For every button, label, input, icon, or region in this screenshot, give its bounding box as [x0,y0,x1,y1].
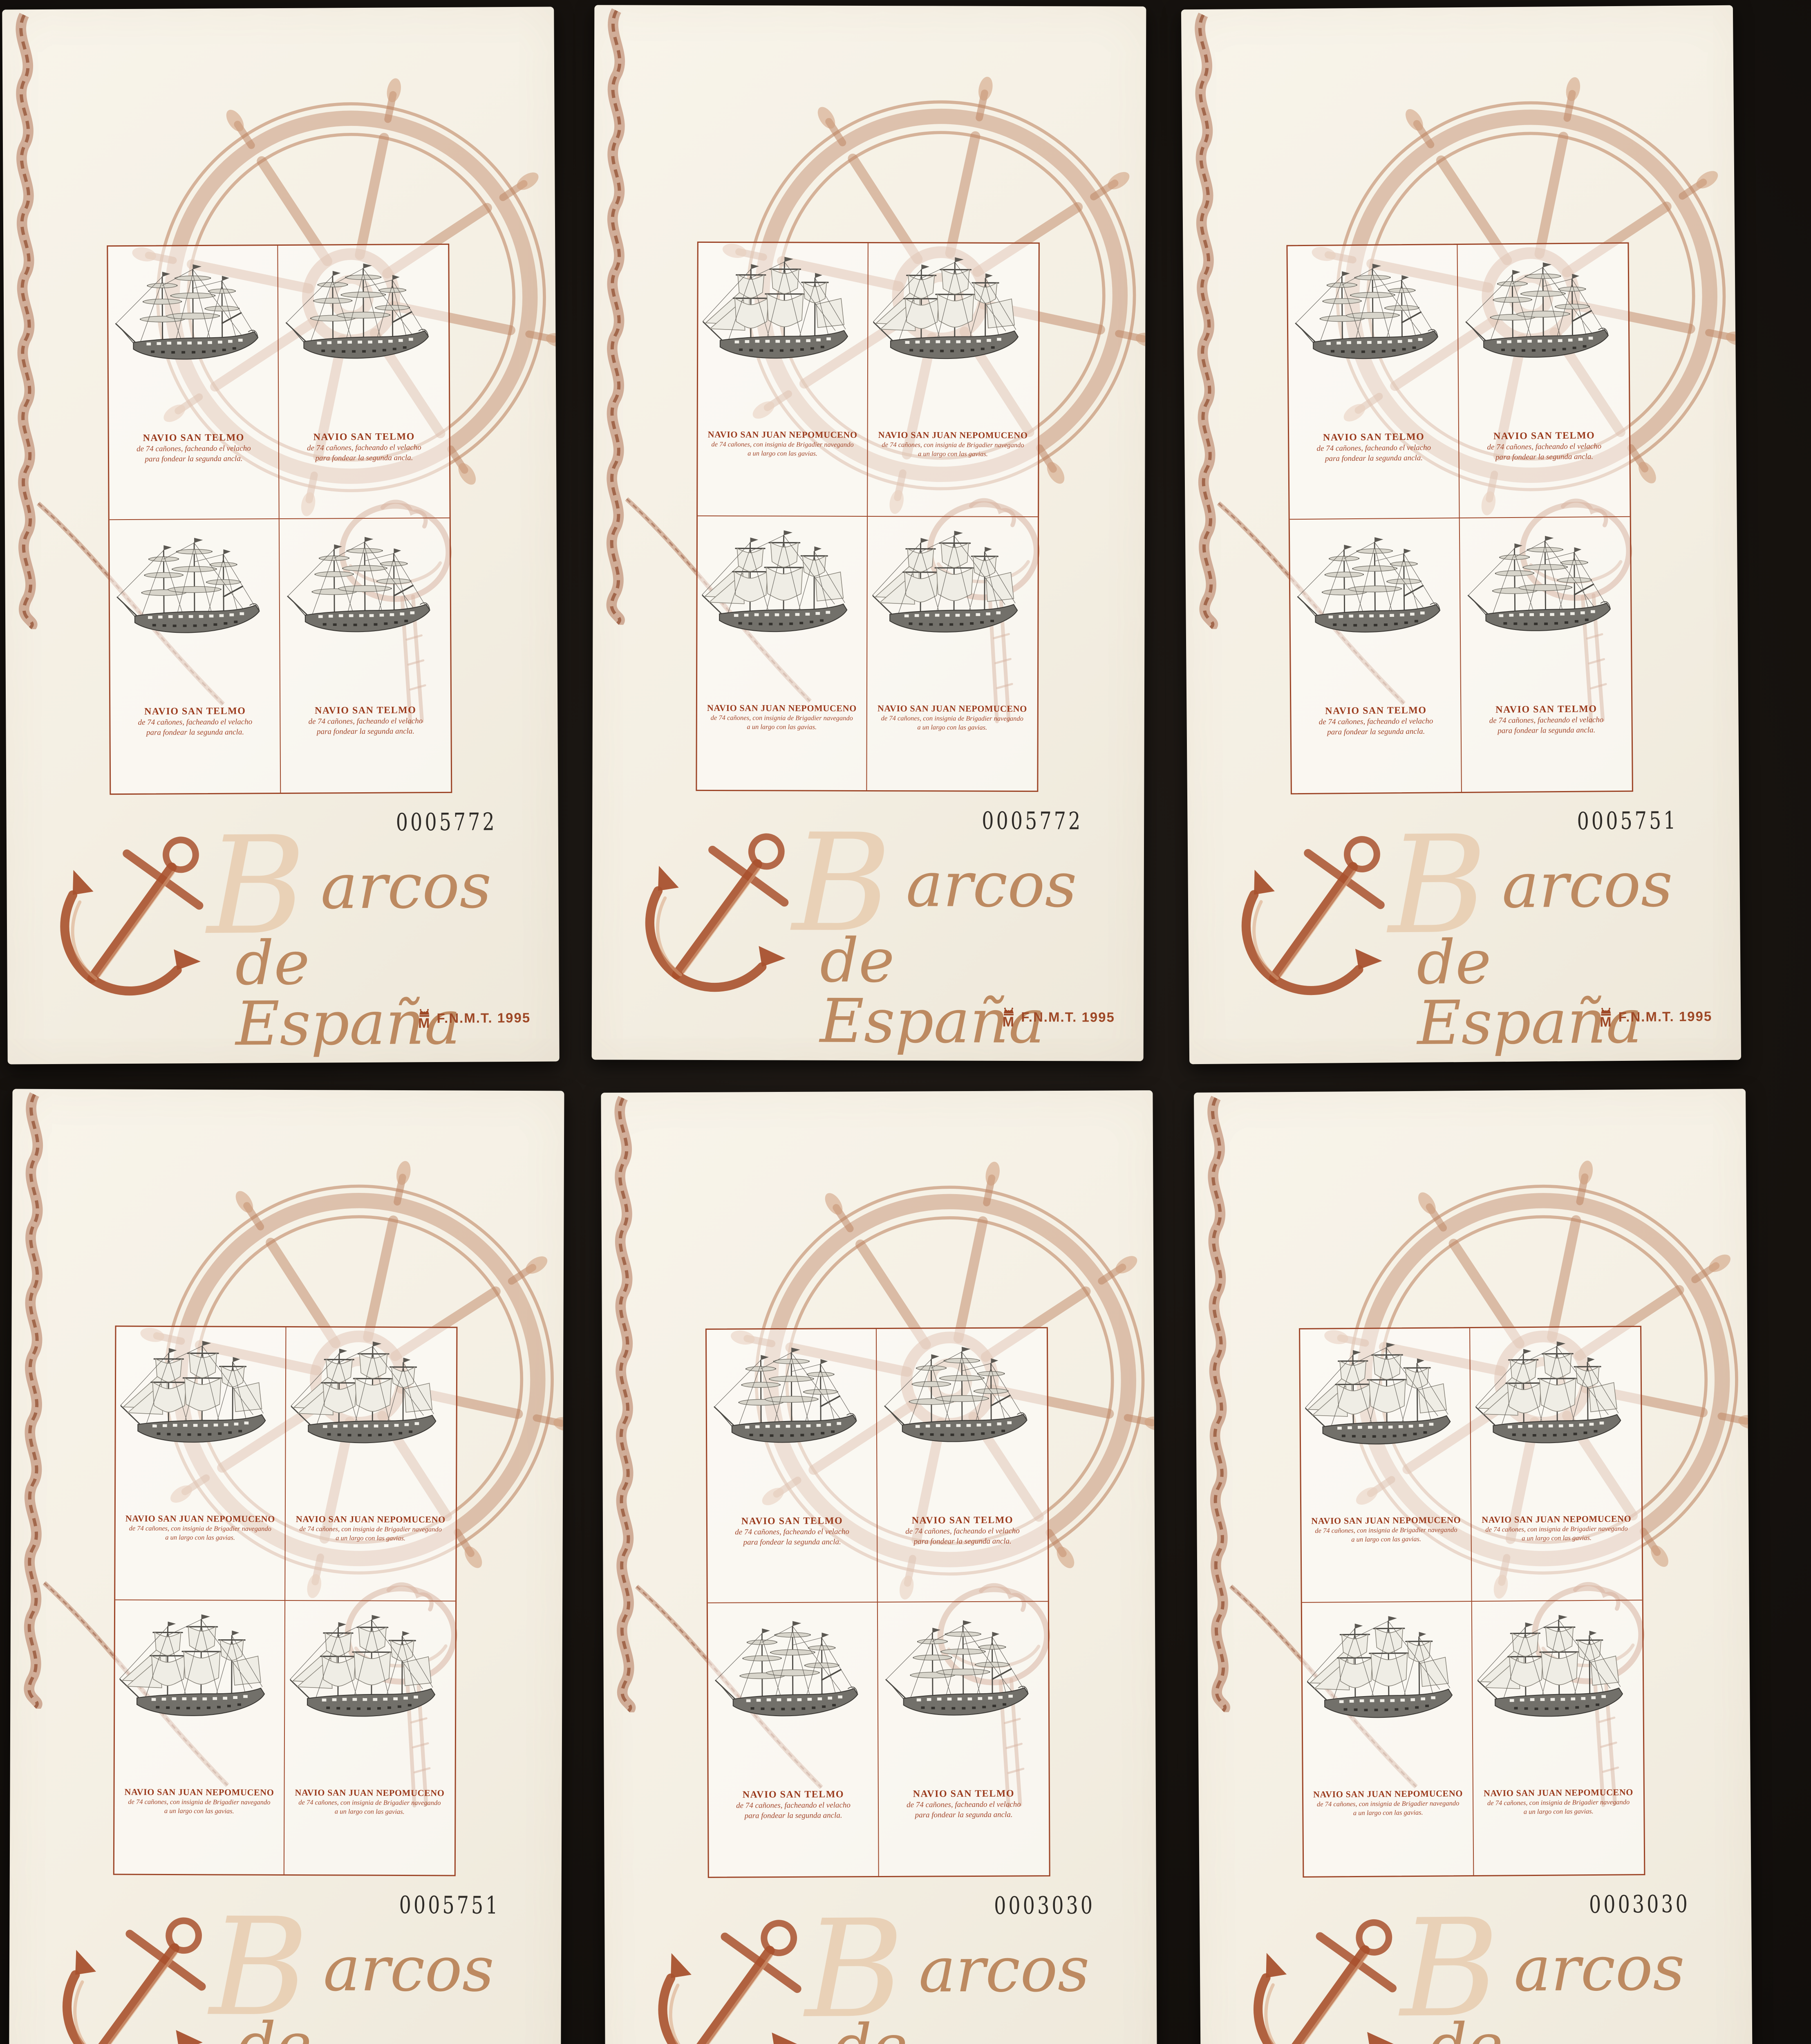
stamp-caption-line: de 74 cañones, con insignia de Brigadier… [878,714,1027,723]
stamp-caption-line: a un largo con las gavias. [878,449,1028,459]
stamp-caption-line: de 74 cañones, facheando el velacho [308,716,423,727]
ship-engraving [119,1614,280,1777]
stamp-caption: NAVIO SAN TELMO de 74 cañones, facheando… [307,431,421,464]
stamp-caption-line: a un largo con las gavias. [878,723,1027,732]
stamp-caption-line: de 74 cañones, facheando el velacho [735,1526,849,1537]
stamp-title: NAVIO SAN TELMO [307,431,421,443]
stamp-caption-line: a un largo con las gavias. [1482,1533,1632,1543]
stamp-caption: NAVIO SAN JUAN NEPOMUCENO de 74 cañones,… [296,1514,445,1543]
stamp-block: NAVIO SAN JUAN NEPOMUCENO de 74 cañones,… [113,1326,458,1876]
stamp-caption-line: de 74 cañones, facheando el velacho [1316,443,1431,454]
printer-credit: M F.N.M.T. 1995 [1442,1006,1712,1029]
ship-engraving [283,258,444,422]
stamp-caption-line: de 74 cañones, con insignia de Brigadier… [1482,1524,1631,1534]
stamp-title: NAVIO SAN TELMO [137,432,251,444]
stamp: NAVIO SAN JUAN NEPOMUCENO de 74 cañones,… [1302,1602,1474,1876]
title-word: arcos [320,855,492,918]
stamp-caption: NAVIO SAN JUAN NEPOMUCENO de 74 cañones,… [878,703,1027,732]
stamp-caption-line: a un largo con las gavias. [125,1533,275,1542]
stamp: NAVIO SAN TELMO de 74 cañones, facheando… [708,1602,879,1877]
stamp-caption: NAVIO SAN TELMO de 74 cañones, facheando… [1319,705,1433,737]
anchor-illustration [1206,1887,1430,2044]
stamp-caption-line: de 74 cañones, con insignia de Brigadier… [708,440,857,449]
stamp: NAVIO SAN JUAN NEPOMUCENO de 74 cañones,… [698,243,869,517]
title-word: arcos [918,1939,1090,2001]
ship-engraving [712,1616,873,1780]
stamp-title: NAVIO SAN TELMO [1489,704,1603,715]
stamp-caption-line: para fondear la segunda ancla. [736,1810,851,1821]
ship-engraving [120,1340,281,1504]
stamp-caption-line: de 74 cañones, con insignia de Brigadier… [878,440,1028,450]
stamp-sheet: NAVIO SAN JUAN NEPOMUCENO de 74 cañones,… [592,5,1146,1061]
stamp-caption-line: a un largo con las gavias. [707,449,857,458]
ship-engraving [873,256,1034,420]
stamp-caption: NAVIO SAN JUAN NEPOMUCENO de 74 cañones,… [707,703,857,731]
stamp-block: NAVIO SAN JUAN NEPOMUCENO de 74 cañones,… [1299,1326,1645,1878]
stamp: NAVIO SAN JUAN NEPOMUCENO de 74 cañones,… [868,243,1039,517]
stamp: NAVIO SAN TELMO de 74 cañones, facheando… [1290,518,1462,793]
stamp-title: NAVIO SAN TELMO [905,1515,1020,1526]
stamp: NAVIO SAN JUAN NEPOMUCENO de 74 cañones,… [114,1600,285,1874]
stamp: NAVIO SAN JUAN NEPOMUCENO de 74 cañones,… [867,517,1038,791]
ship-engraving [1292,258,1454,423]
sheet-serial-number: 0003030 [1510,1889,1690,1919]
stamp-title: NAVIO SAN JUAN NEPOMUCENO [125,1513,275,1524]
stamp-caption-line: de 74 cañones, con insignia de Brigadier… [296,1524,445,1534]
stamp-caption-line: de 74 cañones, con insignia de Brigadier… [1484,1797,1633,1807]
stamp-caption: NAVIO SAN TELMO de 74 cañones, facheando… [1489,704,1603,736]
ship-engraving [703,256,863,420]
stamp: NAVIO SAN JUAN NEPOMUCENO de 74 cañones,… [115,1327,286,1601]
stamp-title: NAVIO SAN TELMO [735,1515,849,1527]
stamp-caption-line: para fondear la segunda ancla. [1489,725,1604,736]
title-word: arcos [906,854,1077,916]
stamp-caption-line: de 74 cañones, con insignia de Brigadier… [295,1798,444,1807]
photo-of-stamp-sheets: { "colors": { "background": "#17130f", "… [0,0,1811,2044]
stamp-caption: NAVIO SAN TELMO de 74 cañones, facheando… [907,1788,1021,1820]
stamp-caption: NAVIO SAN TELMO de 74 cañones, facheando… [736,1789,851,1821]
ship-engraving [702,529,862,693]
stamp: NAVIO SAN TELMO de 74 cañones, facheando… [1457,244,1630,518]
stamp-caption-line: de 74 cañones, facheando el velacho [307,442,421,453]
stamp-title: NAVIO SAN JUAN NEPOMUCENO [296,1514,445,1525]
stamp: NAVIO SAN TELMO de 74 cañones, facheando… [110,519,281,793]
anchor-illustration [611,1888,835,2044]
stamp: NAVIO SAN TELMO de 74 cañones, facheando… [278,245,449,519]
stamp-caption-line: de 74 cañones, con insignia de Brigadier… [125,1524,275,1533]
ship-engraving [872,530,1033,694]
ship-engraving [711,1342,872,1506]
stamp-caption: NAVIO SAN TELMO de 74 cañones, facheando… [1487,430,1601,462]
stamp-caption-line: para fondear la segunda ancla. [905,1536,1020,1547]
fnmt-monogram-icon: M [1598,1007,1614,1027]
stamp-caption-line: para fondear la segunda ancla. [1319,726,1433,737]
title-line2: de España [1428,2014,1724,2044]
stamp: NAVIO SAN TELMO de 74 cañones, facheando… [280,518,451,793]
stamp-title: NAVIO SAN JUAN NEPOMUCENO [1313,1788,1463,1800]
ship-engraving [882,1341,1043,1506]
stamp-title: NAVIO SAN TELMO [1319,705,1433,717]
ship-engraving [1477,1614,1639,1778]
sheet-serial-number: 0005772 [317,807,497,836]
printer-credit-text: F.N.M.T. 1995 [437,1010,531,1026]
stamp-title: NAVIO SAN TELMO [1316,432,1431,444]
stamp-title: NAVIO SAN JUAN NEPOMUCENO [878,703,1027,714]
sheet-serial-number: 0003030 [915,1891,1095,1920]
stamp-caption-line: a un largo con las gavias. [1313,1808,1463,1818]
stamp-title: NAVIO SAN TELMO [138,706,252,717]
stamp-caption: NAVIO SAN JUAN NEPOMUCENO de 74 cañones,… [1313,1788,1463,1818]
stamp-caption-line: de 74 cañones, facheando el velacho [137,443,251,454]
stamp-title: NAVIO SAN TELMO [736,1789,851,1800]
ship-engraving [291,1340,451,1504]
stamp-caption-line: de 74 cañones, facheando el velacho [1489,715,1604,726]
sheet-serial-number: 0005751 [1498,806,1678,836]
stamp-caption: NAVIO SAN JUAN NEPOMUCENO de 74 cañones,… [1311,1515,1461,1544]
stamp: NAVIO SAN JUAN NEPOMUCENO de 74 cañones,… [1300,1328,1472,1603]
title-line2: de España [1417,930,1713,1053]
title-line2: de España [833,2015,1128,2044]
stamp-block: NAVIO SAN TELMO de 74 cañones, facheando… [1286,242,1633,795]
stamp-caption-line: para fondear la segunda ancla. [1317,453,1431,464]
svg-text:M: M [418,1015,431,1029]
stamp-caption-line: de 74 cañones, facheando el velacho [905,1526,1020,1536]
stamp-title: NAVIO SAN JUAN NEPOMUCENO [878,430,1028,441]
stamp-sheet: NAVIO SAN TELMO de 74 cañones, facheando… [601,1090,1157,2044]
anchor-illustration [15,1885,239,2044]
stamp-caption: NAVIO SAN JUAN NEPOMUCENO de 74 cañones,… [124,1787,274,1816]
printer-credit: M F.N.M.T. 1995 [261,1008,531,1029]
stamp-title: NAVIO SAN JUAN NEPOMUCENO [1484,1787,1633,1799]
title-line2: de España [235,932,531,1054]
stamp: NAVIO SAN JUAN NEPOMUCENO de 74 cañones,… [697,516,868,790]
stamp-caption-line: de 74 cañones, con insignia de Brigadier… [1311,1525,1461,1535]
stamp-sheet: NAVIO SAN TELMO de 74 cañones, facheando… [1181,5,1741,1065]
stamp-caption-line: a un largo con las gavias. [1484,1806,1633,1816]
title-word: arcos [323,1938,494,2000]
stamp-title: NAVIO SAN JUAN NEPOMUCENO [124,1787,274,1798]
stamp-caption: NAVIO SAN JUAN NEPOMUCENO de 74 cañones,… [125,1513,275,1542]
stamp-block: NAVIO SAN TELMO de 74 cañones, facheando… [107,244,452,795]
ship-engraving [284,531,445,696]
ship-engraving [883,1615,1044,1779]
ship-engraving [1465,530,1626,695]
ship-engraving [114,532,275,697]
stamp-title: NAVIO SAN JUAN NEPOMUCENO [707,703,857,714]
stamp: NAVIO SAN JUAN NEPOMUCENO de 74 cañones,… [1470,1327,1642,1602]
stamp: NAVIO SAN TELMO de 74 cañones, facheando… [1287,245,1460,520]
printer-credit: M F.N.M.T. 1995 [845,1006,1115,1028]
stamp-caption-line: de 74 cañones, con insignia de Brigadier… [124,1797,274,1807]
stamp-caption-line: para fondear la segunda ancla. [1487,451,1602,462]
stamp-caption-line: a un largo con las gavias. [295,1807,444,1816]
stamp: NAVIO SAN TELMO de 74 cañones, facheando… [707,1329,878,1603]
stamp-title: NAVIO SAN TELMO [907,1788,1021,1800]
ship-engraving [1307,1615,1468,1780]
anchor-illustration [598,801,822,1041]
title-line2: de España [820,930,1115,1052]
stamp-block: NAVIO SAN TELMO de 74 cañones, facheando… [705,1327,1050,1878]
stamp-sheet: NAVIO SAN JUAN NEPOMUCENO de 74 cañones,… [9,1089,564,2044]
stamp-sheet: NAVIO SAN TELMO de 74 cañones, facheando… [2,7,559,1064]
stamp-caption: NAVIO SAN TELMO de 74 cañones, facheando… [137,432,251,464]
fnmt-monogram-icon: M [1001,1007,1017,1027]
stamp-title: NAVIO SAN JUAN NEPOMUCENO [295,1787,444,1798]
stamp-caption-line: para fondear la segunda ancla. [309,726,423,737]
stamp-caption-line: de 74 cañones, facheando el velacho [1319,716,1433,727]
stamp-title: NAVIO SAN JUAN NEPOMUCENO [708,429,857,440]
stamp-caption-line: a un largo con las gavias. [707,722,857,732]
stamp-title: NAVIO SAN TELMO [308,705,423,716]
stamp-caption-line: a un largo con las gavias. [296,1533,445,1543]
stamp: NAVIO SAN JUAN NEPOMUCENO de 74 cañones,… [284,1601,455,1875]
ship-engraving [112,259,273,423]
stamp-caption-line: a un largo con las gavias. [1312,1534,1461,1544]
stamp-caption: NAVIO SAN JUAN NEPOMUCENO de 74 cañones,… [295,1787,444,1816]
stamp: NAVIO SAN TELMO de 74 cañones, facheando… [878,1602,1049,1876]
stamp-caption-line: de 74 cañones, facheando el velacho [907,1799,1021,1810]
printer-credit-text: F.N.M.T. 1995 [1618,1009,1713,1025]
stamp-caption: NAVIO SAN JUAN NEPOMUCENO de 74 cañones,… [707,429,857,458]
anchor-illustration [12,805,236,1045]
svg-text:M: M [1600,1014,1612,1027]
stamp-block: NAVIO SAN JUAN NEPOMUCENO de 74 cañones,… [696,242,1040,792]
anchor-illustration [1193,804,1418,1045]
stamp-caption: NAVIO SAN JUAN NEPOMUCENO de 74 cañones,… [878,430,1028,458]
stamp: NAVIO SAN TELMO de 74 cañones, facheando… [877,1328,1048,1602]
stamp-caption-line: de 74 cañones, con insignia de Brigadier… [707,713,857,723]
stamp-caption-line: para fondear la segunda ancla. [138,727,253,738]
fnmt-monogram-icon: M [416,1008,432,1029]
stamp-caption: NAVIO SAN TELMO de 74 cañones, facheando… [735,1515,849,1547]
title-line2: de España [237,2015,533,2044]
stamp-caption-line: de 74 cañones, facheando el velacho [1487,441,1601,452]
title-word: arcos [1513,1937,1685,2000]
stamp-caption: NAVIO SAN TELMO de 74 cañones, facheando… [138,706,252,738]
title-word: arcos [1502,854,1673,917]
printer-credit-text: F.N.M.T. 1995 [1021,1009,1115,1025]
sheet-serial-number: 0005751 [320,1890,500,1919]
stamp: NAVIO SAN JUAN NEPOMUCENO de 74 cañones,… [285,1327,456,1601]
stamp-title: NAVIO SAN JUAN NEPOMUCENO [1482,1513,1631,1525]
stamp-caption-line: de 74 cañones, con insignia de Brigadier… [1313,1799,1463,1809]
stamp: NAVIO SAN TELMO de 74 cañones, facheando… [108,246,279,520]
stamp-caption-line: a un largo con las gavias. [124,1806,274,1815]
stamp-caption-line: para fondear la segunda ancla. [907,1810,1021,1820]
stamp-title: NAVIO SAN TELMO [1487,430,1601,442]
stamp-caption: NAVIO SAN TELMO de 74 cañones, facheando… [308,705,423,737]
stamp-sheet: NAVIO SAN JUAN NEPOMUCENO de 74 cañones,… [1194,1089,1753,2044]
stamp-caption-line: para fondear la segunda ancla. [735,1537,849,1547]
stamp-caption-line: para fondear la segunda ancla. [307,453,421,464]
stamp-caption: NAVIO SAN JUAN NEPOMUCENO de 74 cañones,… [1484,1787,1633,1816]
stamp-caption-line: de 74 cañones, facheando el velacho [736,1800,851,1811]
ship-engraving [1305,1341,1466,1506]
ship-engraving [290,1614,450,1778]
stamp-caption-line: para fondear la segunda ancla. [137,453,251,464]
stamp: NAVIO SAN TELMO de 74 cañones, facheando… [1460,517,1632,792]
ship-engraving [1475,1340,1636,1505]
ship-engraving [1463,257,1624,421]
stamp-caption-line: de 74 cañones, facheando el velacho [138,717,252,728]
stamp-caption: NAVIO SAN TELMO de 74 cañones, facheando… [905,1515,1020,1546]
stamp: NAVIO SAN JUAN NEPOMUCENO de 74 cañones,… [1472,1600,1644,1875]
stamp-title: NAVIO SAN JUAN NEPOMUCENO [1311,1515,1461,1526]
ship-engraving [1294,531,1456,696]
stamp-caption: NAVIO SAN JUAN NEPOMUCENO de 74 cañones,… [1482,1513,1631,1543]
stamp-caption: NAVIO SAN TELMO de 74 cañones, facheando… [1316,432,1431,464]
sheet-serial-number: 0005772 [903,806,1083,835]
svg-text:M: M [1003,1014,1015,1027]
